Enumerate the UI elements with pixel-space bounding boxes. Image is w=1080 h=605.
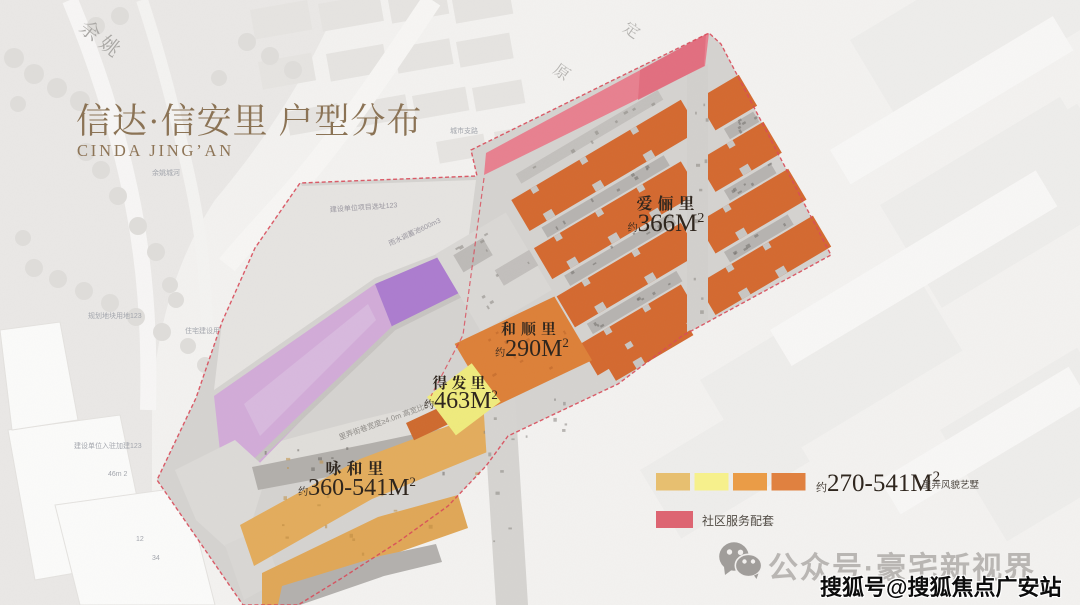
svg-text:约290M2: 约290M2 [495,335,569,362]
svg-text:约360-541M2: 约360-541M2 [298,474,416,501]
svg-text:约463M2: 约463M2 [424,387,498,414]
svg-text:社区服务配套: 社区服务配套 [702,513,774,528]
svg-text:里弄风貌艺墅: 里弄风貌艺墅 [922,479,980,491]
svg-text:约366M2: 约366M2 [628,210,705,237]
